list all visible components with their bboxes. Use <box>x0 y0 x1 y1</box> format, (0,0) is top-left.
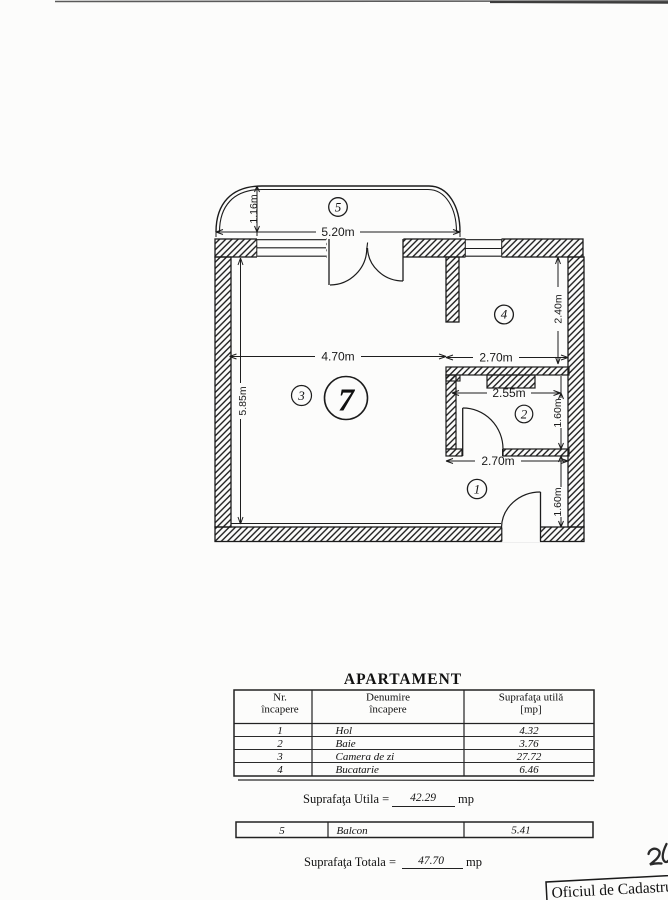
svg-text:1.16m: 1.16m <box>248 194 260 223</box>
svg-text:5.85m: 5.85m <box>237 386 249 415</box>
svg-text:5: 5 <box>279 825 285 837</box>
svg-text:5.20m: 5.20m <box>321 225 354 239</box>
svg-text:încapere: încapere <box>260 704 298 716</box>
svg-text:6.46: 6.46 <box>519 764 539 776</box>
svg-text:47.70: 47.70 <box>418 855 444 867</box>
svg-text:2: 2 <box>521 407 528 422</box>
svg-text:mp: mp <box>458 792 474 806</box>
svg-text:Balcon: Balcon <box>337 825 369 837</box>
svg-text:3: 3 <box>297 388 305 403</box>
svg-text:2.55m: 2.55m <box>492 386 525 400</box>
svg-text:mp: mp <box>466 855 482 869</box>
svg-text:4: 4 <box>501 307 508 322</box>
svg-text:Suprafaţa Utila =: Suprafaţa Utila = <box>303 792 389 806</box>
svg-text:1.60m: 1.60m <box>552 487 564 516</box>
svg-text:27.72: 27.72 <box>517 751 542 763</box>
svg-text:APARTAMENT: APARTAMENT <box>344 671 462 688</box>
svg-text:4.70m: 4.70m <box>321 350 354 364</box>
svg-text:3: 3 <box>276 751 283 763</box>
svg-text:2: 2 <box>277 738 283 750</box>
svg-text:4: 4 <box>277 764 283 776</box>
svg-text:Suprafaţa Totala =: Suprafaţa Totala = <box>304 855 396 869</box>
svg-text:4.32: 4.32 <box>519 725 539 737</box>
svg-text:5: 5 <box>335 200 342 215</box>
svg-text:2.40m: 2.40m <box>553 294 565 323</box>
svg-text:42.29: 42.29 <box>410 792 436 804</box>
svg-text:1: 1 <box>474 482 481 497</box>
svg-text:7: 7 <box>338 382 356 418</box>
svg-text:1.60m: 1.60m <box>552 398 564 427</box>
svg-text:5.41: 5.41 <box>511 825 530 837</box>
svg-text:Nr.: Nr. <box>273 692 287 704</box>
svg-text:2.70m: 2.70m <box>479 351 512 365</box>
svg-text:[mp]: [mp] <box>520 704 541 716</box>
svg-text:1: 1 <box>277 725 283 737</box>
svg-text:Suprafaţa utilă: Suprafaţa utilă <box>499 692 564 704</box>
svg-text:Hol: Hol <box>335 725 353 737</box>
svg-text:Bucatarie: Bucatarie <box>336 764 379 776</box>
svg-text:2.70m: 2.70m <box>481 454 514 468</box>
svg-text:încapere: încapere <box>368 704 406 716</box>
svg-text:Denumire: Denumire <box>366 692 410 704</box>
svg-text:3.76: 3.76 <box>518 738 539 750</box>
svg-text:Camera de zi: Camera de zi <box>336 751 395 763</box>
svg-text:Baie: Baie <box>336 738 356 750</box>
